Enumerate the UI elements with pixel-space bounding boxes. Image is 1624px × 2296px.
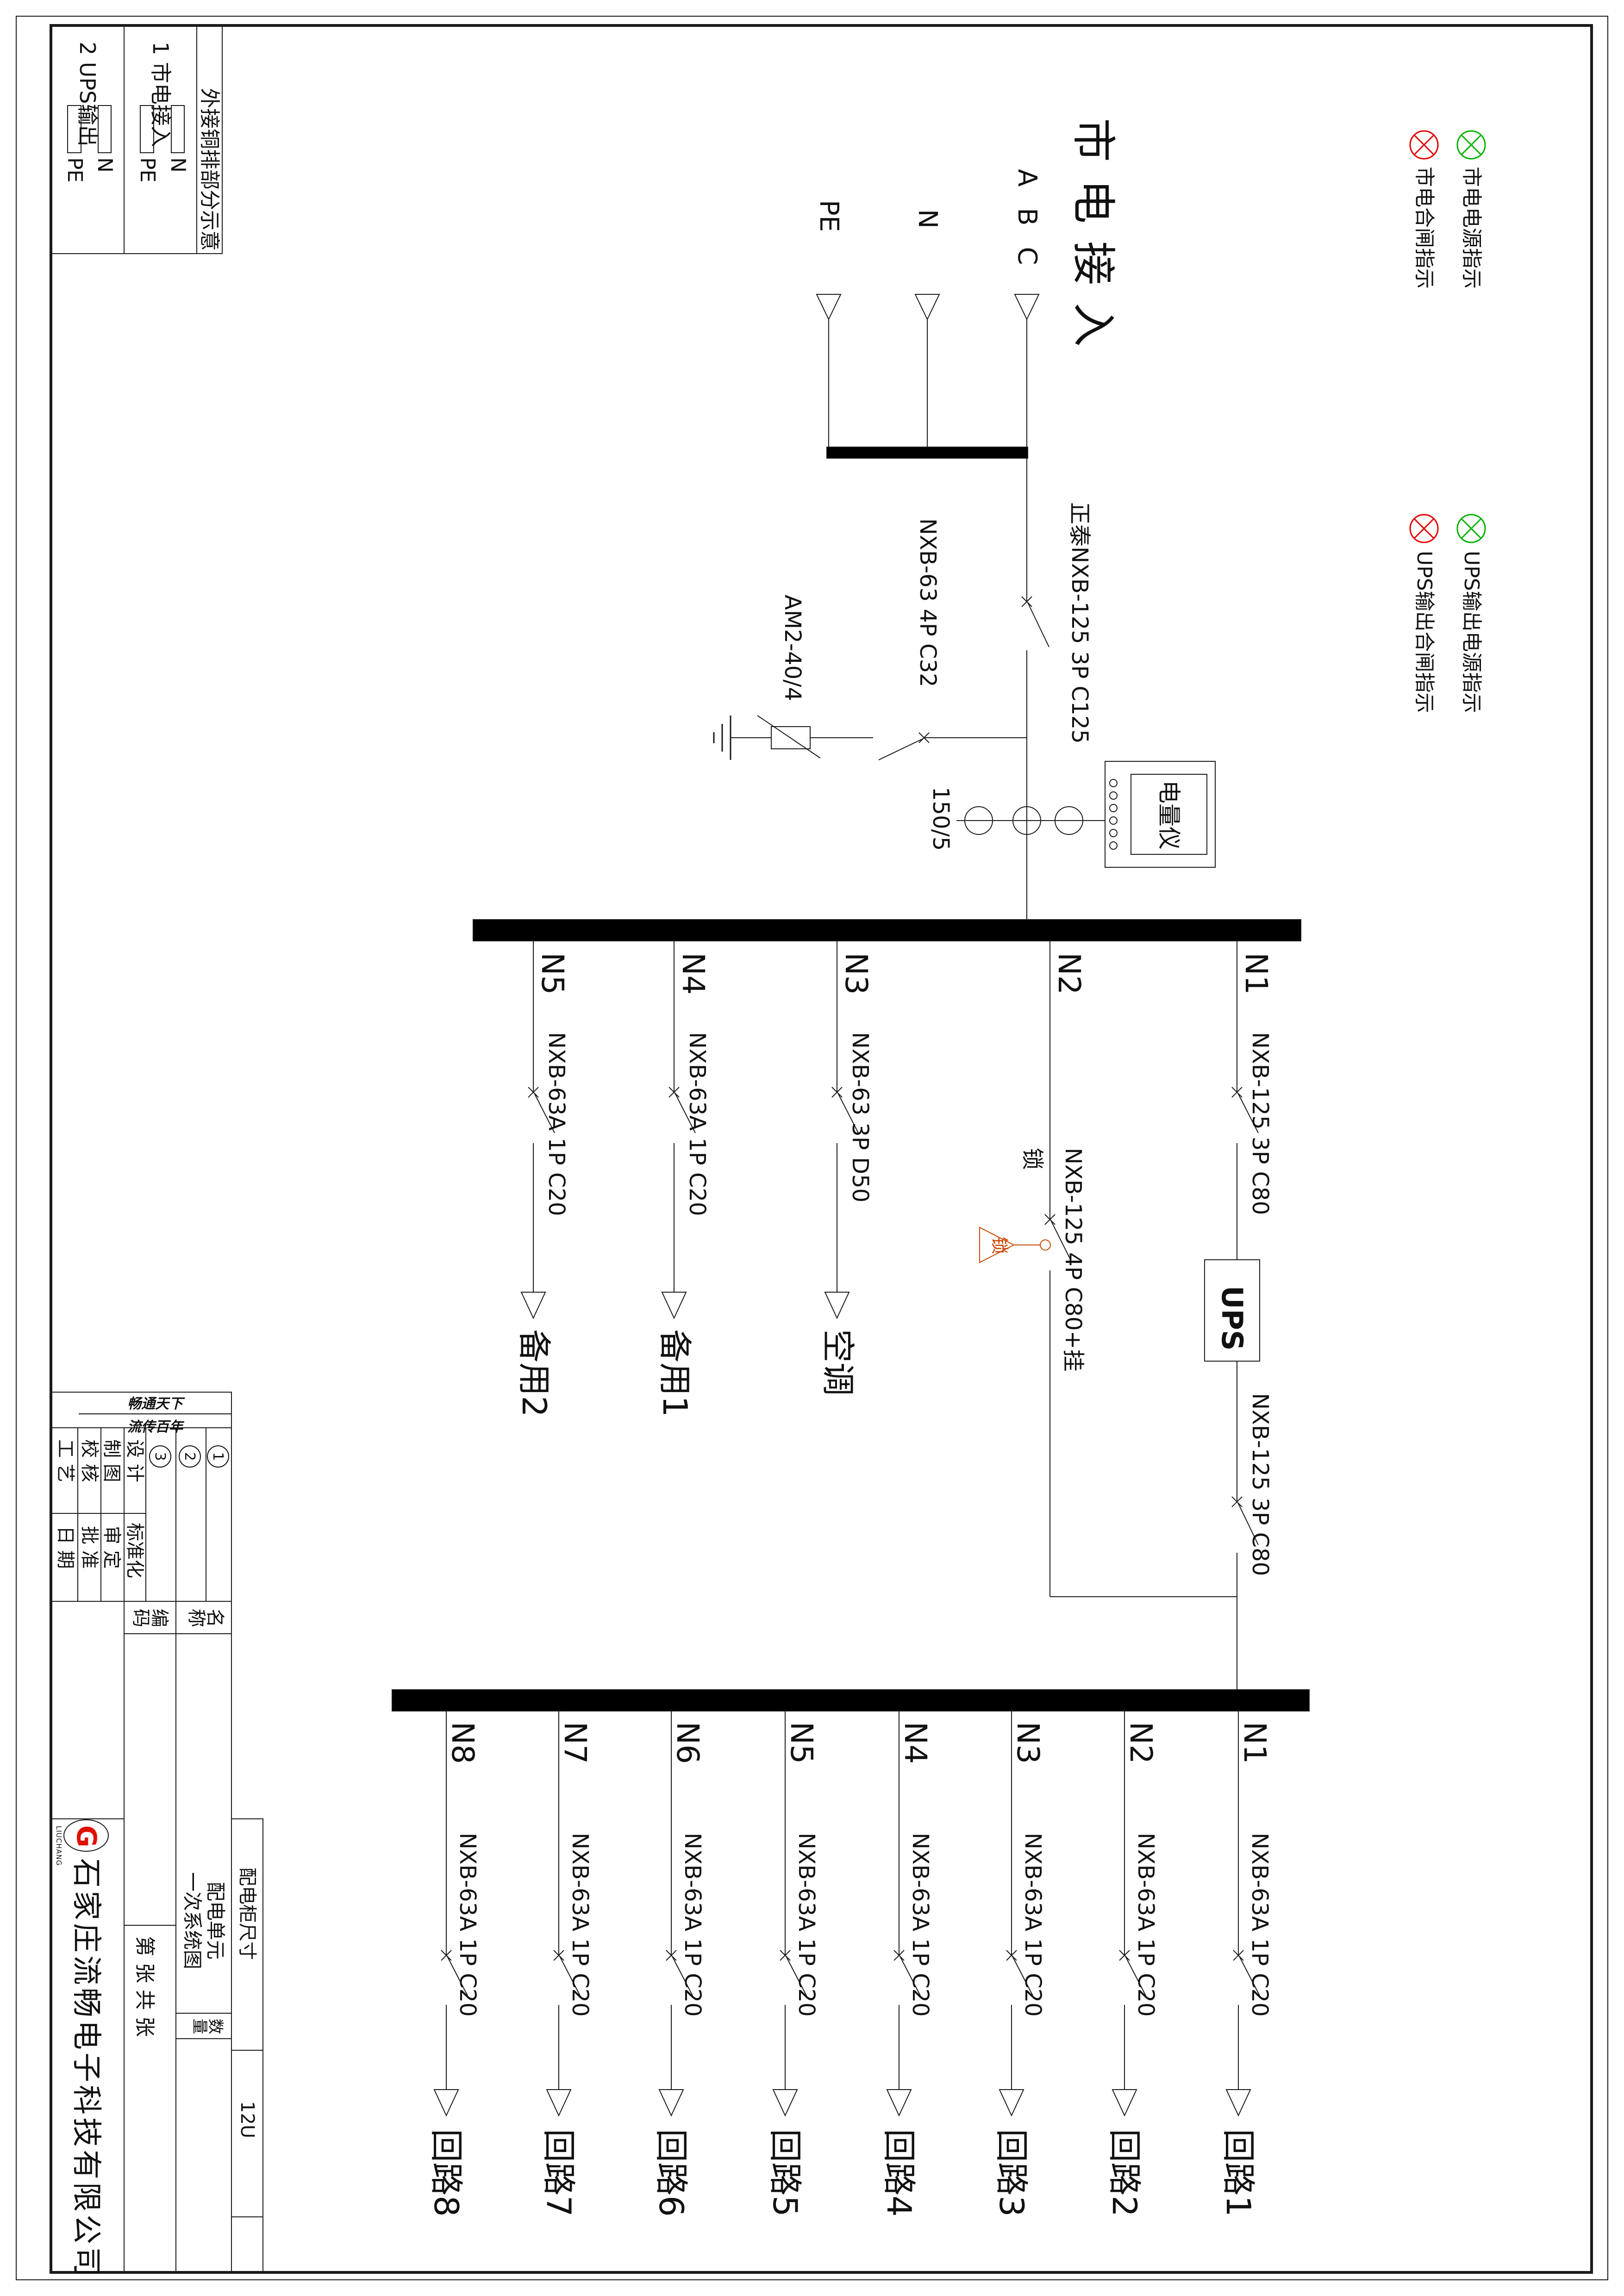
circuit-8-id: N8 <box>447 1722 478 1764</box>
legend-item-4: UPS输出合闸指示 <box>1414 551 1434 713</box>
ground-icon <box>714 716 731 760</box>
circuit-5-id: N5 <box>786 1722 817 1764</box>
circuit-7-breaker: NXB-63A 1P C20 <box>569 1833 591 2017</box>
feeder-n1-id: N1 <box>1241 952 1271 995</box>
circuit-6-breaker: NXB-63A 1P C20 <box>681 1833 704 2017</box>
brand-calligraphy: 畅通天下 流传百年 <box>79 1392 231 1428</box>
phase-abc-label: A B C <box>1014 169 1040 271</box>
brand-slogan-line1: 畅通天下 <box>79 1392 231 1414</box>
feeder-n2-breaker: NXB-125 4P C80+挂 <box>1062 1148 1084 1371</box>
feeder-n3-load: 空调 <box>821 1329 855 1396</box>
tb-product-name-line1: 配电单元 <box>206 1819 225 2022</box>
feeder-n2-id: N2 <box>1054 952 1084 995</box>
lamp-red-icon <box>1410 131 1438 159</box>
revision-2-badge: 2 <box>179 1445 201 1468</box>
lamp-red2-icon <box>1410 515 1438 542</box>
tb-label-standardized: 标准化 <box>125 1523 144 1578</box>
tb-label-name: 名称 <box>188 1607 225 1625</box>
tb-label-checked: 校 核 <box>80 1439 99 1482</box>
tb-value-cabinet-size: 12U <box>238 2101 256 2138</box>
company-logo-subtext: LIUCHANG <box>55 1826 62 1866</box>
feeder-n4-id: N4 <box>678 952 708 995</box>
tb-label-process: 工 艺 <box>56 1439 75 1482</box>
copper-row2-bar1-label: N <box>94 157 115 173</box>
busbar1 <box>827 447 1028 458</box>
main-breaker-symbol <box>1022 597 1049 647</box>
tb-label-drawn: 制 图 <box>102 1439 121 1482</box>
copper-row1-header: 1 市电接入 <box>150 42 171 147</box>
circuit-7-load: 回路7 <box>542 2129 575 2217</box>
feeder-n4-breaker: NXB-63A 1P C20 <box>686 1032 708 1216</box>
feeder-n5-breaker: NXB-63A 1P C20 <box>545 1032 568 1216</box>
circuit-8-breaker: NXB-63A 1P C20 <box>456 1833 479 2017</box>
circuit-1-load: 回路1 <box>1222 2129 1255 2217</box>
feeder-n4-load: 备用1 <box>658 1329 692 1417</box>
busbar2 <box>473 920 1301 941</box>
feeder-n5-load: 备用2 <box>518 1329 551 1417</box>
legend-item-1: 市电电源指示 <box>1461 167 1481 289</box>
ups-output-breaker-label: NXB-125 3P C80 <box>1249 1393 1271 1576</box>
circuit-1-breaker: NXB-63A 1P C20 <box>1249 1833 1271 2017</box>
circuit-5-breaker: NXB-63A 1P C20 <box>795 1833 818 2017</box>
feeder-n3-breaker: NXB-63 3P D50 <box>849 1032 871 1202</box>
tb-sheet-count: 第 张 共 张 <box>134 1936 155 2037</box>
circuit-6-id: N6 <box>672 1722 703 1764</box>
drawing-sheet: 市电电源指示 市电合闸指示 UPS输出电源指示 UPS输出合闸指示 市电接入 A… <box>0 0 1624 2296</box>
busbar3 <box>392 1690 1309 1711</box>
feeder-n3-id: N3 <box>841 952 871 995</box>
circuit-2-id: N2 <box>1125 1722 1156 1764</box>
company-name: 石家庄流畅电子科技有限公司 <box>71 1858 101 2279</box>
n5-load-arrow <box>521 1292 545 1318</box>
tb-label-design: 设 计 <box>125 1439 144 1482</box>
tb-label-cabinet-size: 配电柜尺寸 <box>238 1867 256 1960</box>
meter-label: 电量仪 <box>1157 780 1181 850</box>
tb-label-approved: 批 准 <box>80 1526 99 1569</box>
circuit-2-load: 回路2 <box>1108 2129 1141 2217</box>
tb-label-examined: 审 定 <box>102 1526 121 1569</box>
copper-row1-bar2-label: PE <box>137 157 157 182</box>
feeder-n5-id: N5 <box>537 952 568 995</box>
brand-slogan-line2: 流传百年 <box>79 1414 231 1436</box>
circuit-4-id: N4 <box>900 1722 931 1764</box>
circuit-7-id: N7 <box>560 1722 590 1764</box>
circuit-5-load: 回路5 <box>768 2129 802 2217</box>
copper-row1-bar1-label: N <box>168 157 188 173</box>
tb-product-name-line2: 一次系统图 <box>182 1819 202 2022</box>
feeder-n2-breaker-cont: 锁 <box>1021 1148 1043 1170</box>
circuit-1-id: N1 <box>1239 1722 1270 1764</box>
phase-pe-label: PE <box>816 200 842 232</box>
copper-table-title: 外接铜排部分示意 <box>199 88 219 251</box>
supply-arrow-abc <box>1015 294 1039 319</box>
n3-load-arrow <box>825 1292 849 1318</box>
copper-row2-header: 2 UPS输出 <box>77 42 98 147</box>
circuit-2-breaker: NXB-63A 1P C20 <box>1135 1833 1157 2017</box>
legend-item-2: 市电合闸指示 <box>1414 167 1434 289</box>
surge-breaker-label: NXB-63 4P C32 <box>917 518 939 687</box>
lamp-green2-icon <box>1457 515 1485 542</box>
screenshot-root: 市电电源指示 市电合闸指示 UPS输出电源指示 UPS输出合闸指示 市电接入 A… <box>0 0 1624 2296</box>
circuit-3-load: 回路3 <box>995 2129 1028 2217</box>
legend-item-3: UPS输出电源指示 <box>1461 551 1481 713</box>
circuit-4-load: 回路4 <box>882 2129 916 2217</box>
copper-row2-bar2-label: PE <box>64 157 85 182</box>
supply-arrow-pe <box>817 294 841 319</box>
n4-load-arrow <box>662 1292 686 1318</box>
ups-box-label: UPS <box>1218 1286 1246 1350</box>
feeder-n1-breaker: NXB-125 3P C80 <box>1249 1032 1271 1215</box>
circuit-3-id: N3 <box>1012 1722 1043 1764</box>
tb-label-date: 日 期 <box>56 1526 75 1569</box>
ct-ratio-label: 150/5 <box>930 787 952 851</box>
supply-arrow-n <box>915 294 939 319</box>
phase-n-label: N <box>914 209 940 229</box>
surge-breaker-symbol <box>879 733 929 760</box>
surge-device-label: AM2-40/4 <box>781 595 804 701</box>
tb-label-code: 编码 <box>132 1607 169 1625</box>
company-logo-letter: G <box>73 1825 100 1848</box>
padlock-tag-text: 锁 <box>991 1237 1008 1254</box>
circuit-6-load: 回路6 <box>655 2129 688 2217</box>
surge-protector-icon <box>757 716 820 758</box>
lamp-green-icon <box>1457 131 1485 159</box>
revision-1-badge: 1 <box>207 1445 229 1468</box>
circuit-8-load: 回路8 <box>430 2129 463 2217</box>
circuit-4-breaker: NXB-63A 1P C20 <box>909 1833 931 2017</box>
incoming-title: 市电接入 <box>1071 118 1115 364</box>
circuit-3-breaker: NXB-63A 1P C20 <box>1022 1833 1044 2017</box>
inner-frame <box>51 25 1592 2272</box>
main-breaker-label: 正泰NXB-125 3P C125 <box>1068 502 1091 744</box>
revision-3-badge: 3 <box>149 1445 171 1468</box>
